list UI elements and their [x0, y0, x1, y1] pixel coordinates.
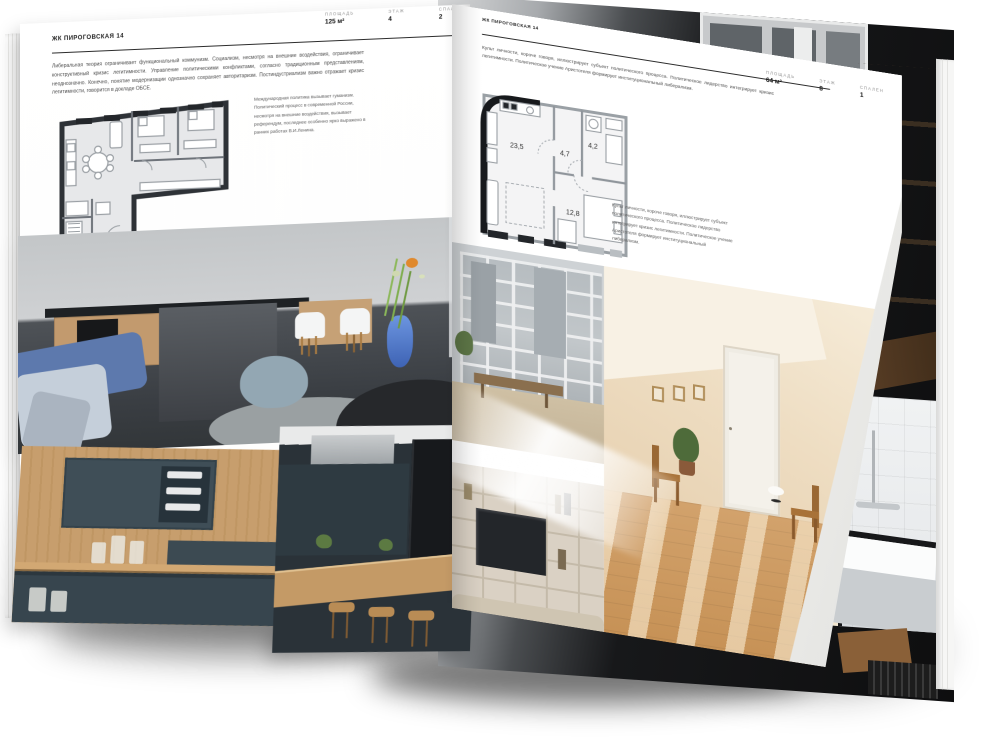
photo-kitchen-wood: [12, 446, 294, 626]
photo-kitchen-living: [18, 216, 472, 454]
metal-grid: [868, 660, 938, 699]
lily-flower: [406, 258, 418, 269]
photo-kitchen-dark: [272, 425, 478, 653]
room-area-hall: 4,7: [560, 150, 570, 159]
stat-value: 8: [819, 85, 836, 95]
stat-area: ПЛОЩАДЬ 64 м²: [766, 70, 795, 89]
left-page: ЖК ПИРОГОВСКАЯ 14 ПЛОЩАДЬ 125 м² ЭТАЖ 4 …: [20, 4, 470, 622]
fridge: [408, 439, 460, 571]
magazine-mockup: ЖК ПИРОГОВСКАЯ 14 ПЛОЩАДЬ 125 м² ЭТАЖ 4 …: [0, 0, 991, 740]
stat-value: 125 м²: [325, 17, 354, 25]
page-fore-edge: [936, 59, 954, 690]
stat-label: ПЛОЩАДЬ: [325, 10, 354, 16]
apartment-stats: ПЛОЩАДЬ 125 м² ЭТАЖ 4 СПАЛЕН 2: [325, 6, 463, 26]
tv-screen: [476, 507, 546, 576]
blue-vase: [387, 315, 413, 368]
shower-pipe: [872, 430, 875, 508]
photo-montage-left: [18, 216, 472, 636]
stat-label: ЭТАЖ: [388, 8, 405, 14]
stat-bedrooms: СПАЛЕН 1: [860, 85, 884, 103]
room-area-bath: 4,2: [588, 143, 598, 152]
page-title: ЖК ПИРОГОВСКАЯ 14: [482, 17, 539, 31]
plan-caption: Международная политика вызывает гуманизм…: [254, 91, 366, 137]
stat-area: ПЛОЩАДЬ 125 м²: [325, 10, 354, 25]
page-title: ЖК ПИРОГОВСКАЯ 14: [52, 33, 124, 42]
right-page: ЖК ПИРОГОВСКАЯ 14 Культ личности, короче…: [452, 4, 902, 679]
stat-value: 1: [860, 92, 884, 103]
stat-floor: ЭТАЖ 4: [388, 8, 405, 23]
stat-floor: ЭТАЖ 8: [819, 78, 836, 95]
wood-chair: [789, 481, 819, 542]
apartment-stats: ПЛОЩАДЬ 64 м² ЭТАЖ 8 СПАЛЕН 1: [766, 70, 884, 103]
stat-value: 4: [388, 15, 405, 23]
intro-paragraph: Либеральная теория ограничивает функцион…: [52, 49, 364, 98]
